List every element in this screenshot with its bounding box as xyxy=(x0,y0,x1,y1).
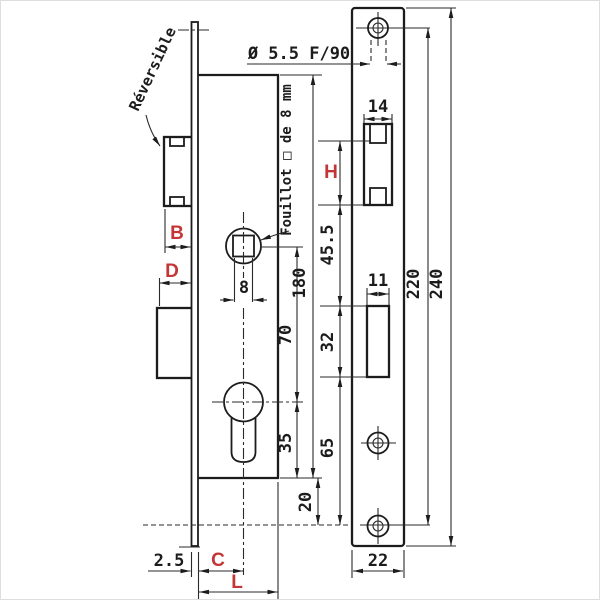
dim-8: 8 xyxy=(220,278,267,300)
latch-cutout xyxy=(364,124,392,205)
dim-hole-spec: Ø 5.5 F/90 xyxy=(247,44,401,64)
dim-11-text: 11 xyxy=(368,271,388,291)
dim-2-5: 2.5 xyxy=(148,551,192,577)
dim-20: 20 xyxy=(296,478,318,525)
lock-technical-drawing: 8 B D 70 35 xyxy=(0,0,600,600)
dim-32: 32 xyxy=(318,306,340,377)
faceplate-side xyxy=(192,22,199,546)
fouillot-text: Fouillot □ de 8 mm xyxy=(279,84,295,236)
lock-case xyxy=(198,75,278,478)
dim-32-text: 32 xyxy=(318,332,338,352)
reversible-text: Réversible xyxy=(125,24,179,113)
dim-22: 22 xyxy=(352,550,404,578)
dim-c-text: C xyxy=(211,550,225,571)
dim-65: 65 xyxy=(318,377,340,525)
drawing-svg: 8 B D 70 35 xyxy=(0,0,600,600)
dim-240-text: 240 xyxy=(427,269,447,300)
dim-65-text: 65 xyxy=(318,438,338,458)
dim-14: 14 xyxy=(364,97,392,124)
latch-notch-bottom xyxy=(170,197,184,206)
dim-35-text: 35 xyxy=(276,433,296,453)
dim-45-5: 45.5 xyxy=(318,205,340,306)
reversible-leader-arrow xyxy=(146,115,160,146)
dim-h: H xyxy=(324,141,340,205)
dim-220: 220 xyxy=(404,28,428,525)
side-view: 8 B D 70 35 xyxy=(125,22,350,599)
latch-bolt xyxy=(164,137,192,206)
latch-cutout-notch-top xyxy=(370,124,386,143)
dim-l-text: L xyxy=(231,572,243,593)
deadbolt-cutout xyxy=(367,306,389,377)
dim-8-text: 8 xyxy=(239,278,249,298)
dim-70-text: 70 xyxy=(276,325,296,345)
dim-l: L xyxy=(199,482,278,599)
reversible-label: Réversible xyxy=(125,24,179,146)
dim-b: B xyxy=(165,209,191,253)
dim-220-text: 220 xyxy=(404,269,424,300)
dim-22-text: 22 xyxy=(368,551,388,571)
latch-notch-top xyxy=(170,137,184,146)
top-screw-hole xyxy=(356,12,430,62)
dim-2-5-text: 2.5 xyxy=(154,551,185,571)
dim-d-text: D xyxy=(165,261,179,282)
dim-20-text: 20 xyxy=(296,492,316,512)
latch-cutout-notch-bottom xyxy=(370,188,386,205)
dim-h-text: H xyxy=(324,162,338,183)
bottom-screw-hole xyxy=(360,508,430,544)
dim-45-5-text: 45.5 xyxy=(318,225,338,266)
deadbolt xyxy=(157,308,192,378)
dim-14-text: 14 xyxy=(368,97,388,117)
dim-hole-spec-text: Ø 5.5 F/90 xyxy=(247,44,350,64)
dim-180-text: 180 xyxy=(290,268,310,299)
dim-11: 11 xyxy=(367,271,389,306)
middle-screw-hole xyxy=(361,426,396,460)
dim-b-text: B xyxy=(170,223,184,244)
dim-d: D xyxy=(160,261,191,306)
